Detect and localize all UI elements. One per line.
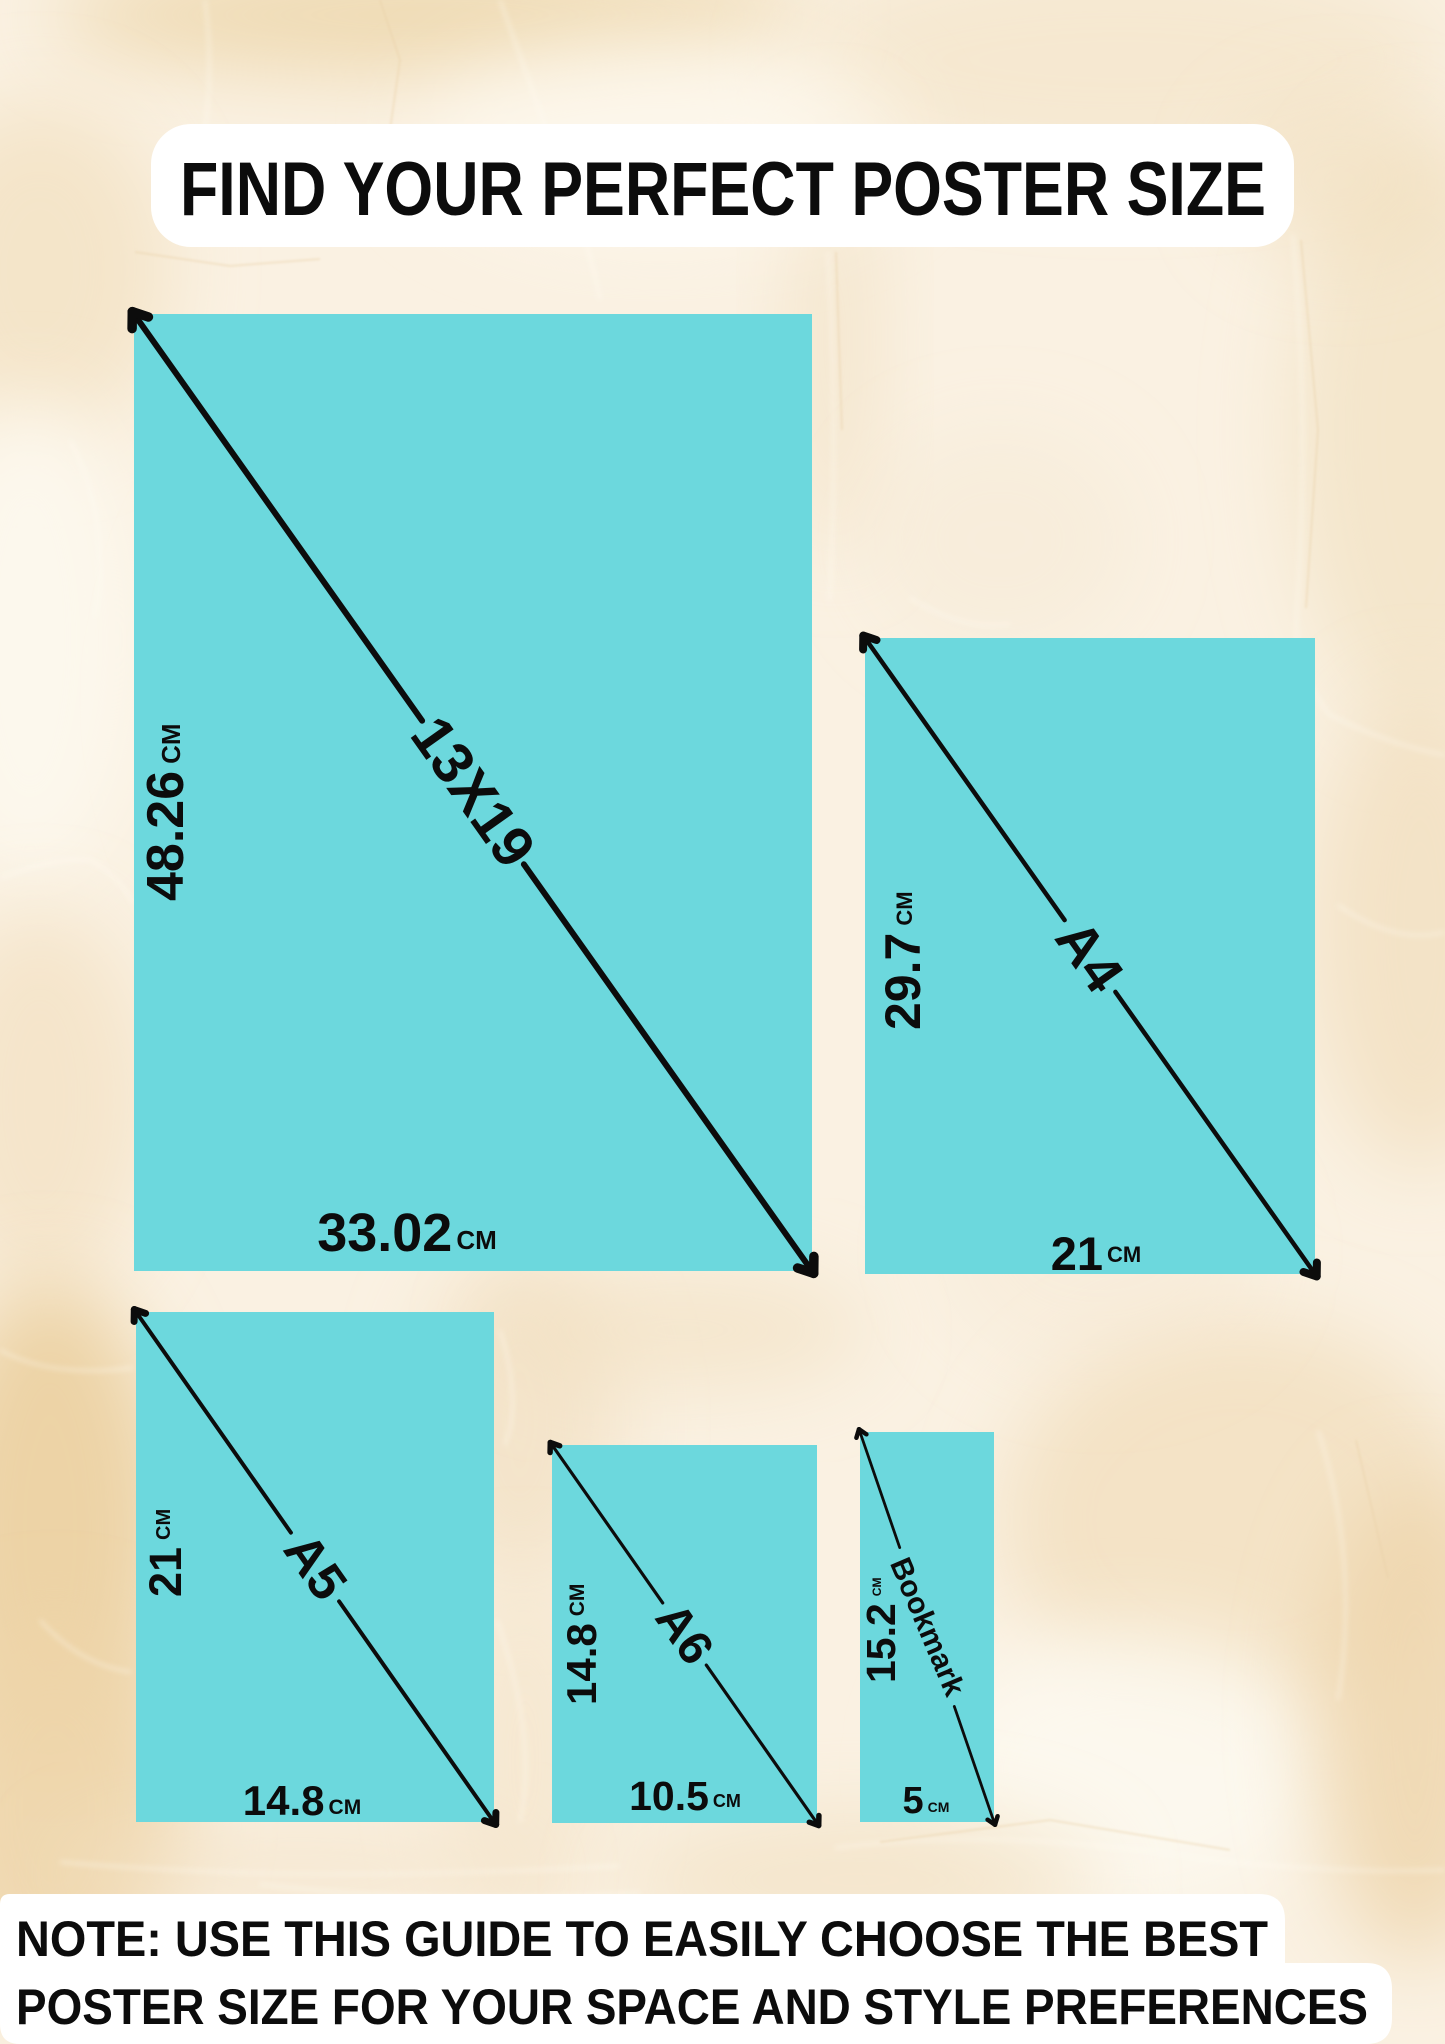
svg-text:FIND YOUR PERFECT POSTER SIZE: FIND YOUR PERFECT POSTER SIZE — [180, 147, 1266, 232]
svg-text:POSTER SIZE FOR YOUR SPACE AND: POSTER SIZE FOR YOUR SPACE AND STYLE PRE… — [16, 1979, 1368, 2035]
svg-text:NOTE: USE THIS GUIDE TO EASILY: NOTE: USE THIS GUIDE TO EASILY CHOOSE TH… — [16, 1911, 1268, 1967]
